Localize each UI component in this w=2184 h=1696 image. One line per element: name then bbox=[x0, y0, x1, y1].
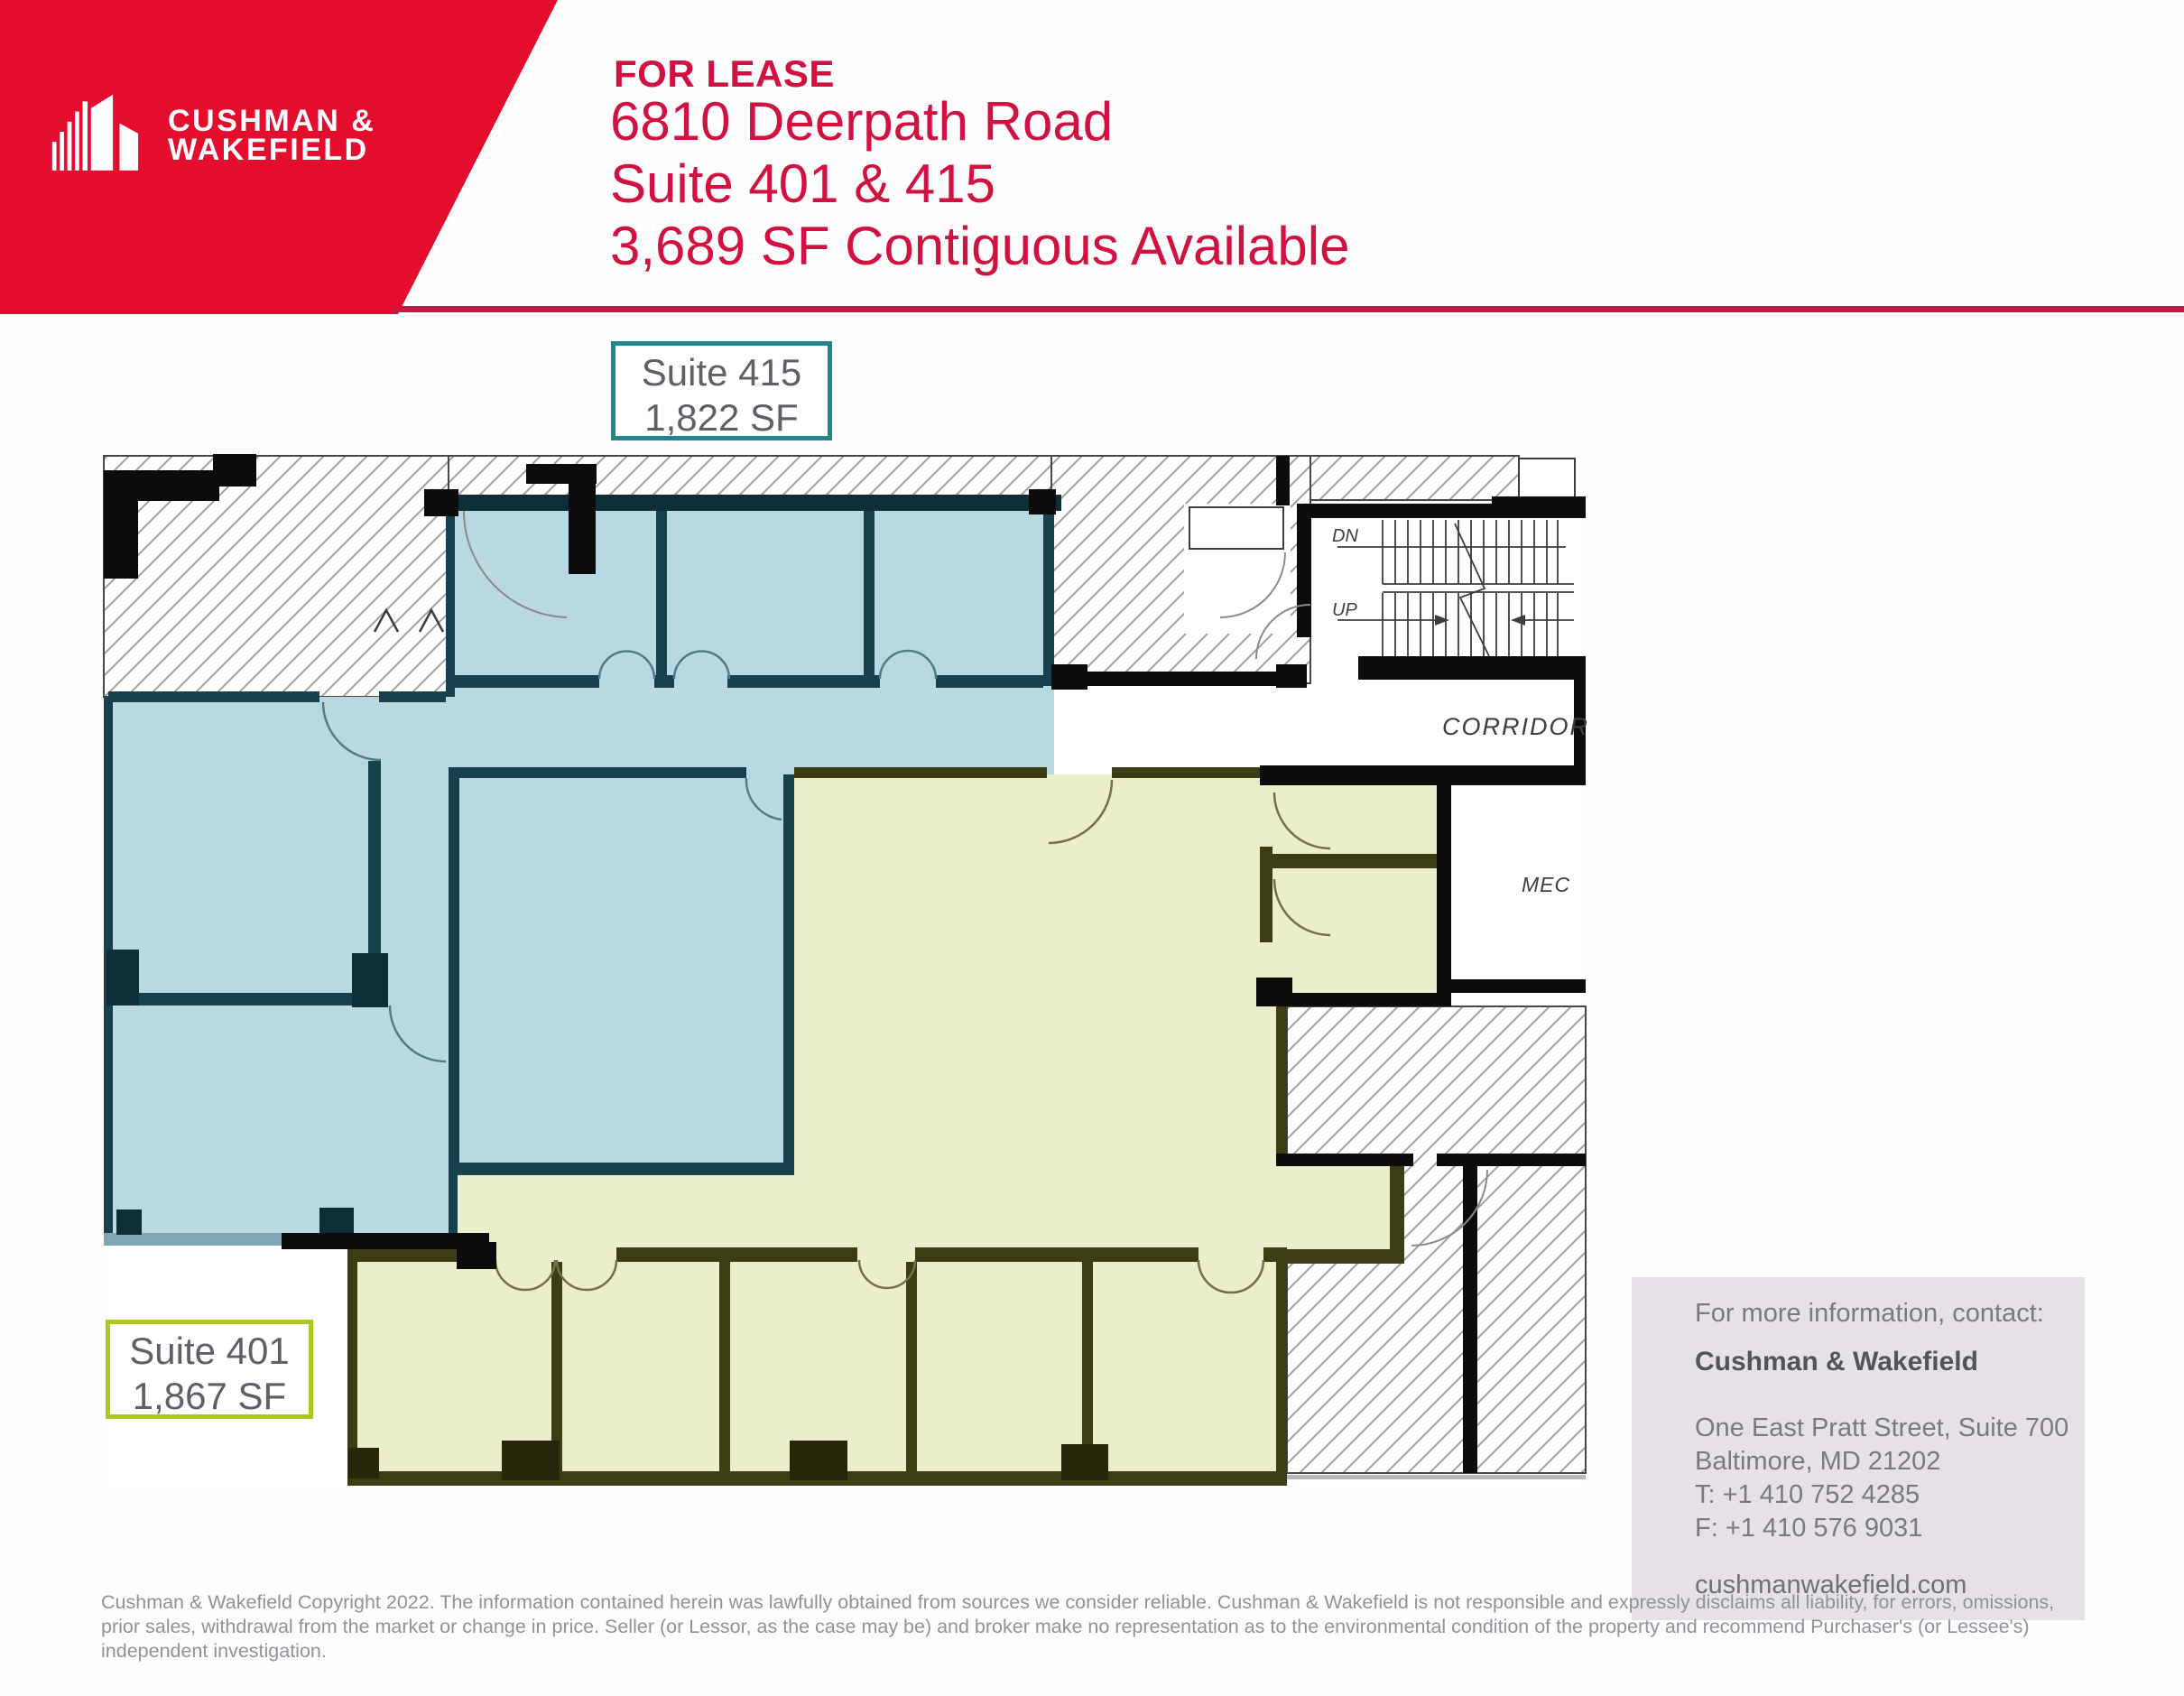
shaft bbox=[1519, 459, 1575, 498]
header-divider-line bbox=[393, 306, 2184, 312]
suite-415-name: Suite 415 bbox=[615, 350, 828, 395]
contact-panel: For more information, contact: Cushman &… bbox=[1632, 1277, 2085, 1620]
property-availability: 3,689 SF Contiguous Available bbox=[610, 215, 1349, 277]
property-suites: Suite 401 & 415 bbox=[610, 153, 1349, 215]
corridor-label: CORRIDOR bbox=[1442, 713, 1589, 740]
suite-415-area-text: 1,822 SF bbox=[615, 395, 828, 440]
contact-address2: Baltimore, MD 21202 bbox=[1695, 1445, 2076, 1478]
contact-fax: F: +1 410 576 9031 bbox=[1695, 1512, 2076, 1545]
contact-phone: T: +1 410 752 4285 bbox=[1695, 1478, 2076, 1512]
stair-up-label: UP bbox=[1332, 600, 1357, 620]
stair-dn-label: DN bbox=[1332, 526, 1358, 546]
mechanical-room-label: MEC bbox=[1522, 873, 1570, 896]
cushman-wakefield-building-icon bbox=[51, 88, 152, 175]
plan-bottom-line bbox=[1287, 1475, 1586, 1479]
contact-company: Cushman & Wakefield bbox=[1695, 1347, 2076, 1377]
contact-intro: For more information, contact: bbox=[1695, 1299, 2076, 1329]
copyright-disclaimer: Cushman & Wakefield Copyright 2022. The … bbox=[101, 1590, 2090, 1664]
suite-401-label-box: Suite 401 1,867 SF bbox=[106, 1320, 313, 1419]
closet bbox=[1189, 507, 1283, 549]
brand-line-1: CUSHMAN & bbox=[168, 107, 375, 135]
suite-401-name: Suite 401 bbox=[110, 1329, 309, 1374]
suite-401-area-text: 1,867 SF bbox=[110, 1374, 309, 1419]
property-heading: 6810 Deerpath Road Suite 401 & 415 3,689… bbox=[610, 90, 1349, 277]
brand-wordmark: CUSHMAN & WAKEFIELD bbox=[168, 107, 375, 164]
brand-line-2: WAKEFIELD bbox=[168, 135, 375, 164]
for-lease-heading: FOR LEASE bbox=[614, 52, 835, 96]
contact-address1: One East Pratt Street, Suite 700 bbox=[1695, 1412, 2076, 1445]
property-address: 6810 Deerpath Road bbox=[610, 90, 1349, 153]
suite-415-label-box: Suite 415 1,822 SF bbox=[611, 341, 832, 440]
flyer-page: DN UP CORRIDOR MEC CUSHMAN & WAKEFIELD F… bbox=[0, 0, 2184, 1696]
